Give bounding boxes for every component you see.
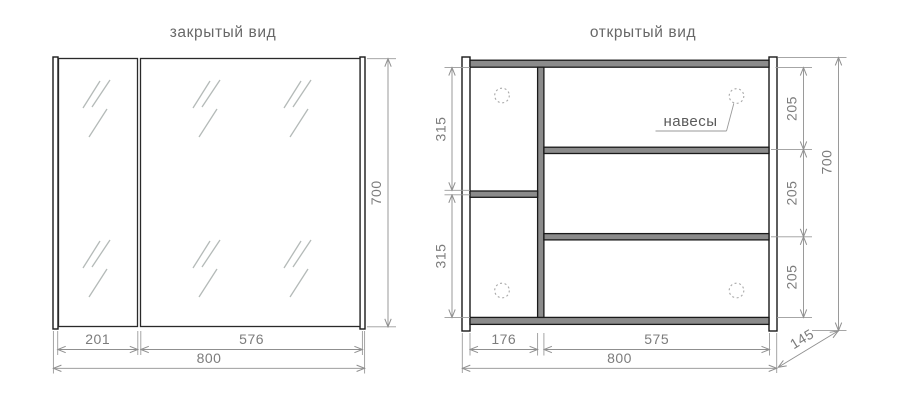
dim-value-closed-height: 700 bbox=[368, 180, 384, 205]
dim-value-door-left-width: 201 bbox=[85, 331, 110, 347]
dim-value-left-section-width: 176 bbox=[491, 331, 516, 347]
dim-value-door-right-width: 576 bbox=[239, 331, 264, 347]
open-side-panel-right bbox=[769, 57, 777, 331]
title-closed-view: закрытый вид bbox=[170, 24, 277, 41]
hinges-callout: навесы bbox=[656, 104, 734, 132]
dim-value-open-height: 700 bbox=[819, 150, 835, 175]
title-open-view: открытый вид bbox=[590, 24, 696, 41]
vertical-divider-panel bbox=[538, 67, 544, 317]
dim-value-closed-total-width: 800 bbox=[197, 350, 222, 366]
open-view-drawing: навесы 315 315 205 205 205 bbox=[433, 57, 847, 373]
hinge-hole-icon bbox=[495, 88, 510, 103]
bottom-panel bbox=[470, 317, 769, 324]
dim-closed-height: 700 bbox=[367, 59, 396, 327]
dim-value-gap-middle: 205 bbox=[784, 181, 800, 206]
hinge-hole-icon bbox=[729, 89, 744, 104]
dim-open-widths: 176 575 800 145 bbox=[462, 325, 838, 373]
dim-value-left-top-height: 315 bbox=[433, 117, 449, 142]
closed-side-panel-right bbox=[360, 57, 365, 329]
hinges-label: навесы bbox=[663, 113, 717, 130]
dim-value-right-section-width: 575 bbox=[644, 331, 669, 347]
dim-value-open-total-width: 800 bbox=[607, 350, 632, 366]
dim-closed-widths: 201 576 800 bbox=[53, 331, 364, 374]
shelf-right-upper bbox=[544, 147, 769, 153]
hinge-hole-icon bbox=[495, 283, 510, 298]
mirror-door-right bbox=[141, 59, 361, 327]
drawing-canvas: закрытый вид открытый вид bbox=[0, 0, 900, 404]
top-panel bbox=[470, 60, 769, 67]
open-side-panel-left bbox=[462, 57, 470, 331]
shelf-left-column bbox=[470, 191, 538, 197]
dim-value-gap-top: 205 bbox=[784, 96, 800, 121]
dim-value-left-bottom-height: 315 bbox=[433, 244, 449, 269]
dim-value-gap-bottom: 205 bbox=[784, 265, 800, 290]
closed-side-panel-left bbox=[53, 57, 58, 329]
technical-drawing-page: закрытый вид открытый вид bbox=[0, 0, 900, 404]
closed-view-drawing: 700 201 576 800 bbox=[53, 57, 396, 374]
shelf-right-lower bbox=[544, 234, 769, 240]
hinge-hole-icon bbox=[729, 283, 744, 298]
dim-value-depth: 145 bbox=[787, 325, 817, 352]
